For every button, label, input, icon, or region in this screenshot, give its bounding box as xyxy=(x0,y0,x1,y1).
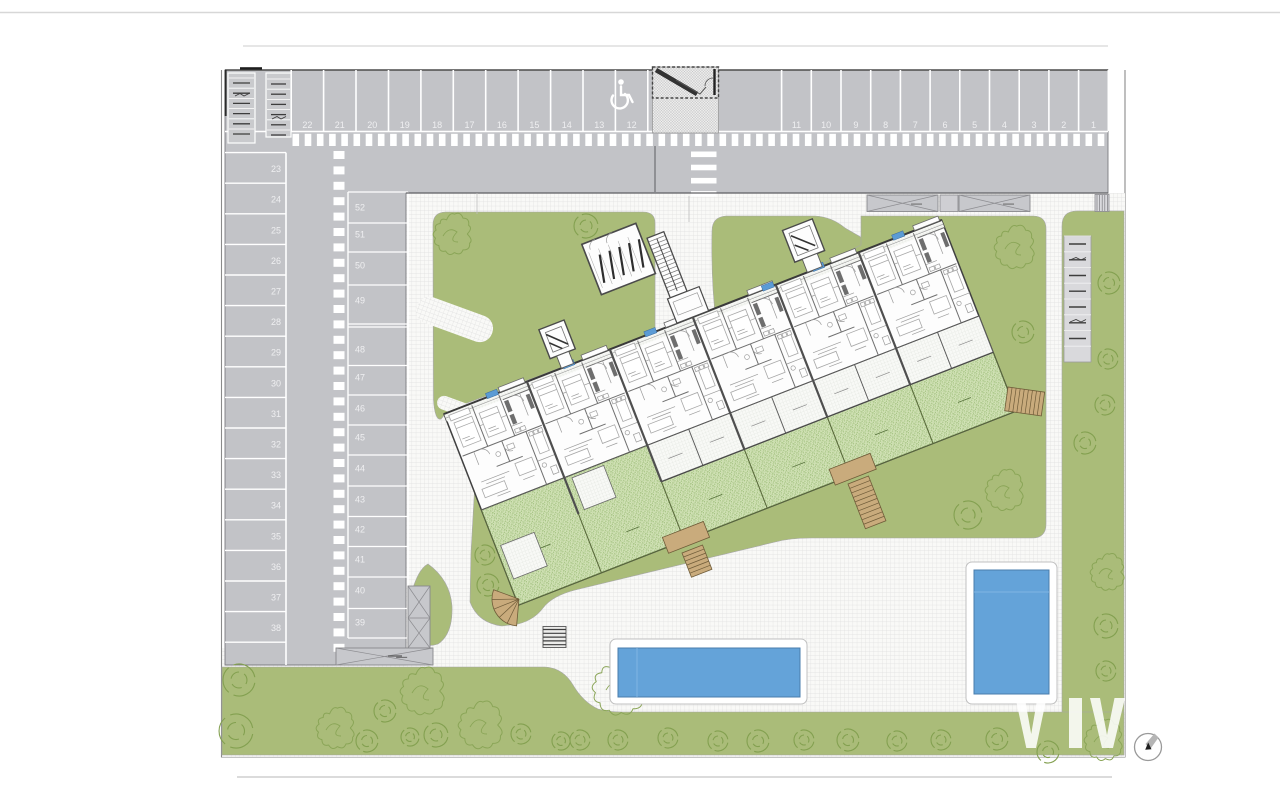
svg-text:38: 38 xyxy=(271,623,281,633)
svg-text:23: 23 xyxy=(271,164,281,174)
svg-text:51: 51 xyxy=(355,230,365,240)
svg-text:44: 44 xyxy=(355,464,365,474)
svg-text:8: 8 xyxy=(883,120,888,130)
svg-text:15: 15 xyxy=(529,120,539,130)
svg-text:26: 26 xyxy=(271,256,281,266)
svg-text:10: 10 xyxy=(821,120,831,130)
svg-text:19: 19 xyxy=(400,120,410,130)
svg-text:18: 18 xyxy=(432,120,442,130)
svg-text:31: 31 xyxy=(271,409,281,419)
svg-text:41: 41 xyxy=(355,555,365,565)
svg-text:40: 40 xyxy=(355,586,365,596)
svg-text:17: 17 xyxy=(464,120,474,130)
svg-text:27: 27 xyxy=(271,287,281,297)
svg-text:37: 37 xyxy=(271,593,281,603)
svg-text:16: 16 xyxy=(497,120,507,130)
svg-text:33: 33 xyxy=(271,470,281,480)
svg-text:5: 5 xyxy=(972,120,977,130)
svg-text:9: 9 xyxy=(853,120,858,130)
svg-text:35: 35 xyxy=(271,531,281,541)
svg-text:25: 25 xyxy=(271,225,281,235)
svg-text:34: 34 xyxy=(271,501,281,511)
svg-text:4: 4 xyxy=(1002,120,1007,130)
svg-text:50: 50 xyxy=(355,261,365,271)
svg-text:28: 28 xyxy=(271,317,281,327)
svg-text:36: 36 xyxy=(271,562,281,572)
svg-text:13: 13 xyxy=(594,120,604,130)
svg-text:43: 43 xyxy=(355,495,365,505)
svg-text:6: 6 xyxy=(942,120,947,130)
svg-text:24: 24 xyxy=(271,195,281,205)
svg-text:20: 20 xyxy=(367,120,377,130)
svg-text:1: 1 xyxy=(1091,120,1096,130)
svg-text:52: 52 xyxy=(355,203,365,213)
svg-text:12: 12 xyxy=(627,120,637,130)
svg-text:30: 30 xyxy=(271,378,281,388)
svg-text:3: 3 xyxy=(1031,120,1036,130)
svg-text:11: 11 xyxy=(792,120,801,130)
svg-text:49: 49 xyxy=(355,296,365,306)
svg-text:39: 39 xyxy=(355,618,365,628)
svg-text:42: 42 xyxy=(355,525,365,535)
svg-text:7: 7 xyxy=(913,120,918,130)
svg-text:45: 45 xyxy=(355,433,365,443)
svg-text:47: 47 xyxy=(355,373,365,383)
svg-text:2: 2 xyxy=(1061,120,1066,130)
svg-text:14: 14 xyxy=(562,120,572,130)
svg-text:22: 22 xyxy=(302,120,312,130)
svg-text:32: 32 xyxy=(271,440,281,450)
svg-text:46: 46 xyxy=(355,404,365,414)
svg-text:48: 48 xyxy=(355,345,365,355)
svg-text:21: 21 xyxy=(335,120,345,130)
svg-text:29: 29 xyxy=(271,348,281,358)
